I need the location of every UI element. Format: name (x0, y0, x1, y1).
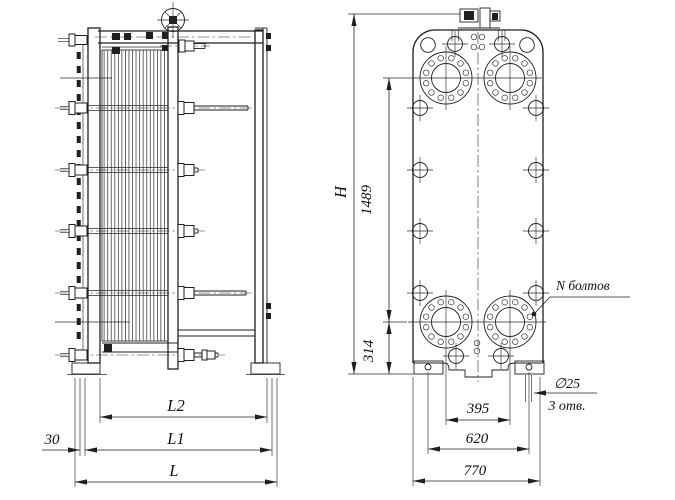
dim-label-L2: L2 (166, 396, 184, 415)
drawing-canvas: L2 L1 L 30 (0, 0, 675, 500)
front-view-dimensions: H 1489 314 395 620 770 (331, 14, 540, 486)
note-hole-diameter: ∅25 (554, 377, 580, 392)
note-hole-count: 3 отв. (547, 399, 585, 414)
dim-label-620: 620 (466, 431, 489, 447)
side-view-dimensions: L2 L1 L 30 (42, 378, 277, 487)
tie-bolt-row (55, 349, 225, 362)
front-view-feet (414, 361, 544, 402)
top-slots (452, 30, 505, 41)
lifting-eye (157, 2, 189, 38)
dim-label-H: H (331, 185, 350, 199)
dim-label-L1: L1 (166, 429, 184, 448)
dim-label-1489: 1489 (359, 185, 375, 216)
pressure-plate (168, 27, 178, 369)
dim-label-L: L (168, 461, 178, 480)
corner-hole-right (520, 38, 535, 53)
support-column (255, 28, 271, 363)
front-view-callouts: N болтов ∅25 3 отв. (532, 278, 630, 414)
dim-label-395: 395 (466, 401, 490, 417)
dim-label-314: 314 (361, 339, 377, 363)
note-n-bolts: N болтов (555, 278, 610, 293)
top-bracket (458, 8, 500, 28)
plate-pack (102, 47, 178, 352)
guide-bar (178, 330, 255, 336)
corner-hole-left (421, 38, 436, 53)
front-view: H 1489 314 395 620 770 N болтов ∅25 3 от… (331, 8, 630, 486)
dim-label-30: 30 (44, 432, 61, 448)
heat-exchanger-drawing: L2 L1 L 30 (0, 0, 675, 500)
side-view: L2 L1 L 30 (42, 2, 285, 487)
dim-label-770: 770 (464, 463, 487, 479)
